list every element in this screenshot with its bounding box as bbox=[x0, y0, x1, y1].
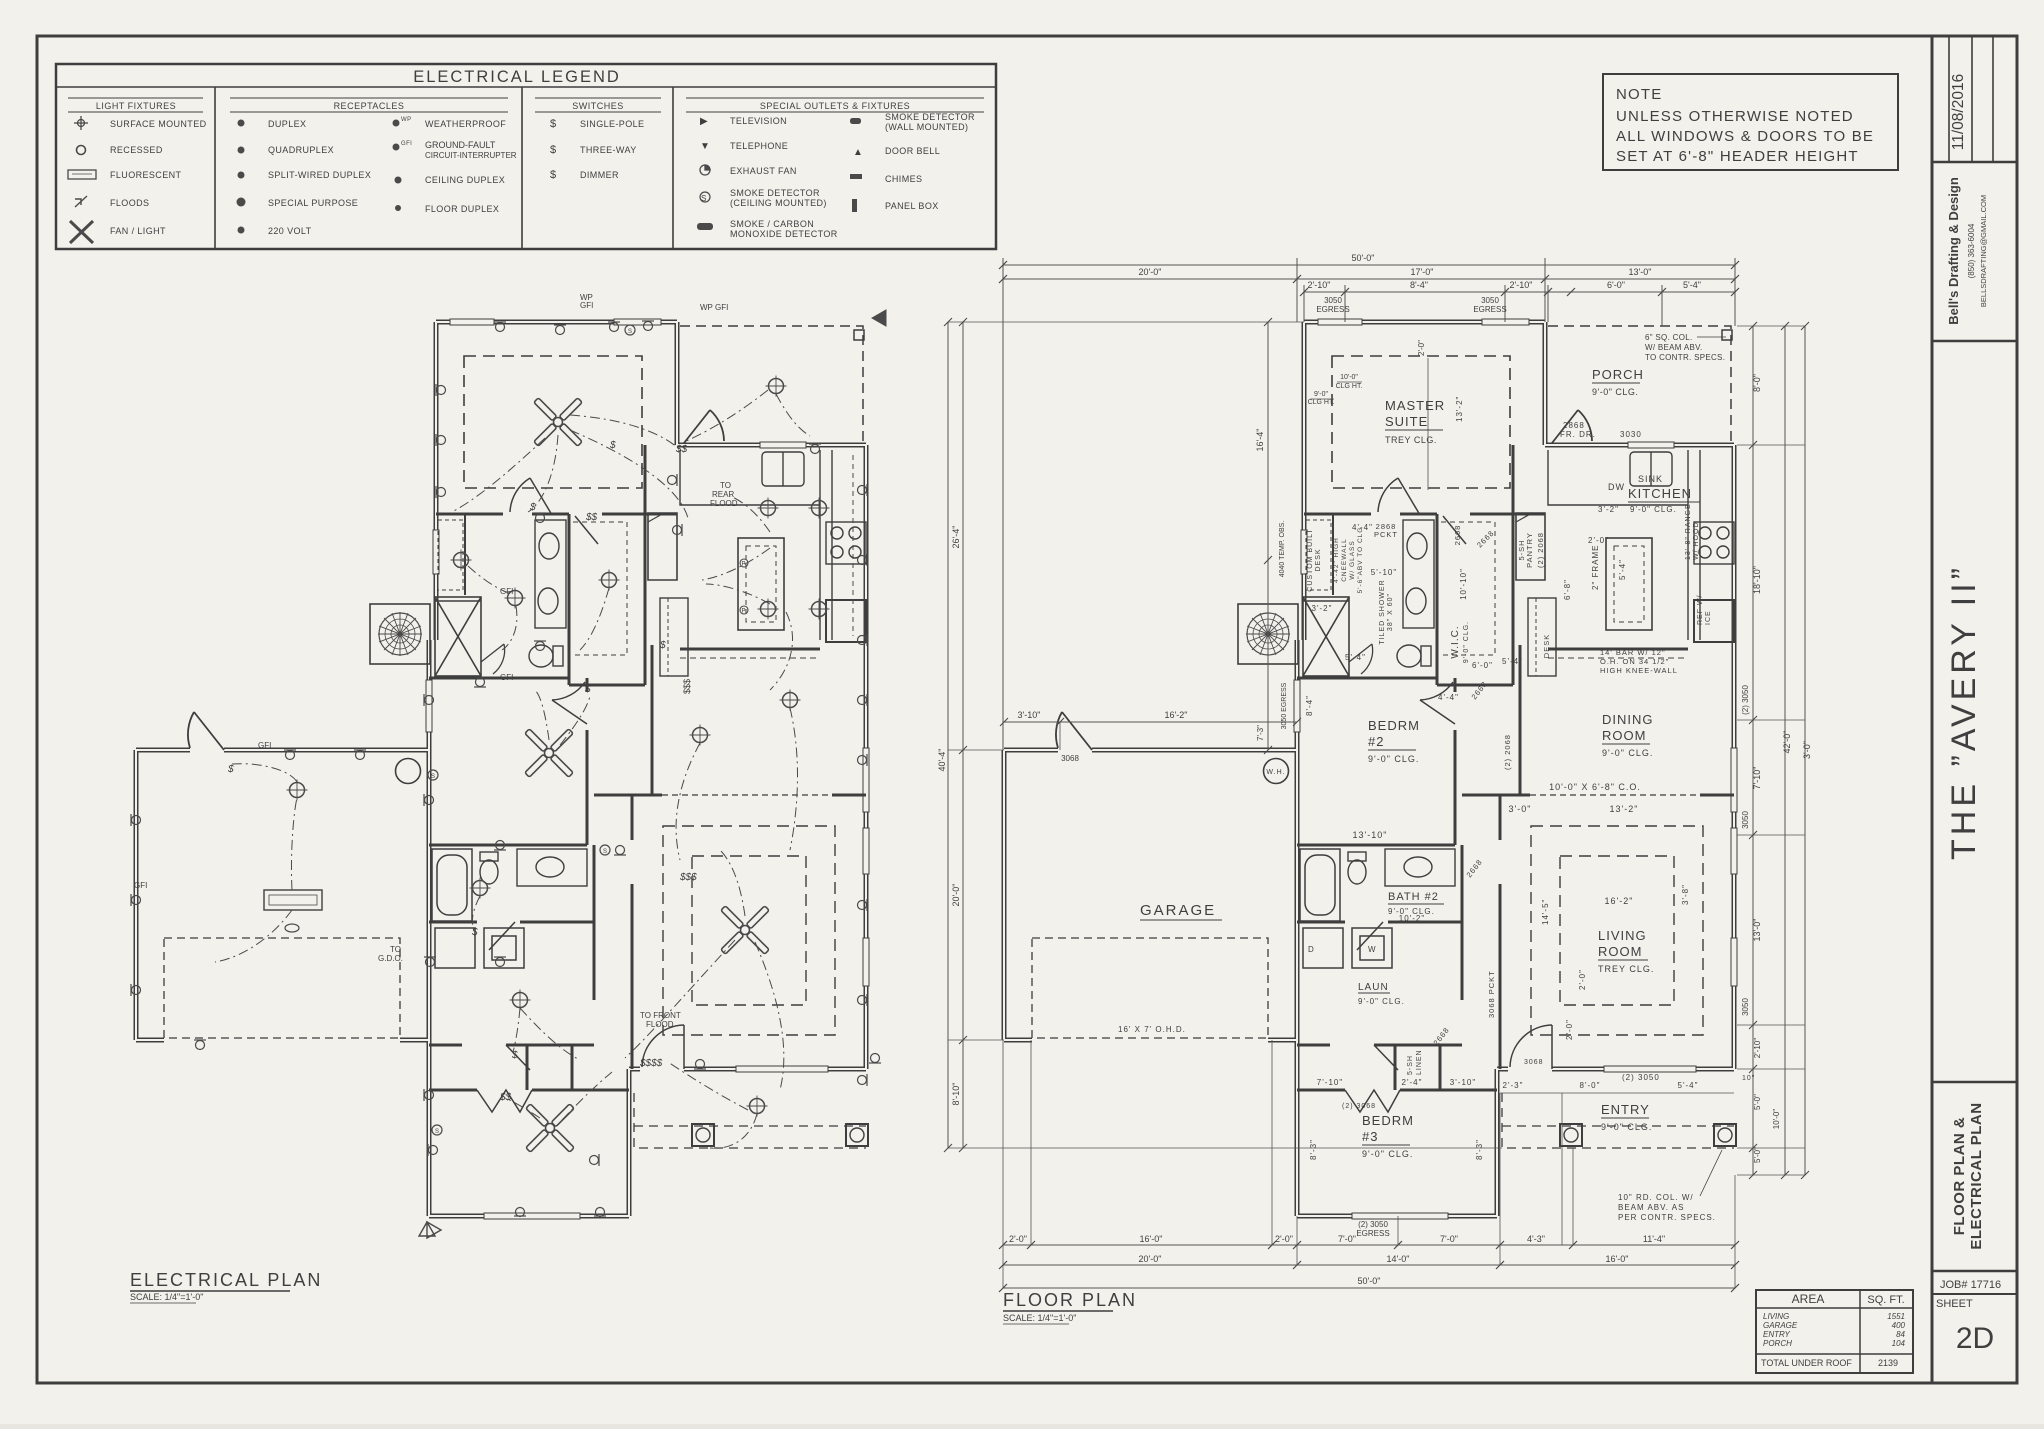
svg-text:(2) 3050: (2) 3050 bbox=[1358, 1220, 1388, 1229]
svg-text:3'-8": 3'-8" bbox=[1681, 884, 1690, 905]
svg-text:6'-0": 6'-0" bbox=[1607, 280, 1625, 290]
svg-text:W/ GLASS: W/ GLASS bbox=[1349, 540, 1356, 579]
svg-text:20'-0": 20'-0" bbox=[1139, 267, 1162, 277]
svg-text:$$$: $$$ bbox=[679, 872, 697, 883]
svg-text:DESK: DESK bbox=[1315, 548, 1322, 571]
svg-text:DOOR BELL: DOOR BELL bbox=[885, 146, 940, 156]
svg-text:ROOM: ROOM bbox=[1598, 944, 1642, 959]
svg-text:$: $ bbox=[471, 927, 478, 938]
svg-text:2D: 2D bbox=[1956, 1322, 1994, 1355]
svg-text:10'-0": 10'-0" bbox=[1340, 374, 1358, 381]
svg-text:3050: 3050 bbox=[1481, 296, 1499, 305]
svg-text:WP GFI: WP GFI bbox=[700, 303, 728, 312]
svg-text:CUSTOM BUILT: CUSTOM BUILT bbox=[1307, 528, 1314, 591]
svg-text:11'-4": 11'-4" bbox=[1643, 1234, 1665, 1244]
svg-text:P: P bbox=[742, 609, 746, 615]
svg-text:SCALE: 1/4"=1'-0": SCALE: 1/4"=1'-0" bbox=[130, 1292, 203, 1302]
svg-text:PANEL BOX: PANEL BOX bbox=[885, 201, 939, 211]
svg-text:ICE: ICE bbox=[1705, 610, 1712, 625]
svg-text:▶: ▶ bbox=[700, 116, 708, 127]
svg-text:16'-2": 16'-2" bbox=[1605, 896, 1634, 906]
svg-text:13'-2": 13'-2" bbox=[1610, 804, 1639, 814]
svg-text:RECESSED: RECESSED bbox=[110, 145, 163, 155]
svg-text:GFI: GFI bbox=[258, 741, 271, 750]
svg-text:16'-2": 16'-2" bbox=[1165, 710, 1188, 720]
svg-text:SUITE: SUITE bbox=[1385, 414, 1428, 429]
svg-text:▼: ▼ bbox=[700, 141, 710, 152]
svg-text:8'-4": 8'-4" bbox=[1410, 280, 1428, 290]
svg-text:8'-0": 8'-0" bbox=[1580, 1081, 1601, 1090]
svg-text:16'-0": 16'-0" bbox=[1140, 1234, 1163, 1244]
svg-text:50'-0": 50'-0" bbox=[1358, 1276, 1381, 1286]
svg-text:DW: DW bbox=[1608, 482, 1625, 492]
svg-text:EGRESS: EGRESS bbox=[1316, 305, 1349, 314]
svg-text:SCALE: 1/4"=1'-0": SCALE: 1/4"=1'-0" bbox=[1003, 1313, 1076, 1323]
svg-text:3050: 3050 bbox=[1324, 296, 1342, 305]
svg-text:18'-10": 18'-10" bbox=[1752, 566, 1762, 594]
svg-text:GFI: GFI bbox=[500, 673, 513, 682]
svg-text:(2) 3050: (2) 3050 bbox=[1622, 1073, 1660, 1082]
svg-text:3'-10": 3'-10" bbox=[1018, 710, 1041, 720]
svg-text:TELEVISION: TELEVISION bbox=[730, 116, 787, 126]
svg-text:DINING: DINING bbox=[1602, 712, 1654, 727]
svg-text:W/ BEAM ABV.: W/ BEAM ABV. bbox=[1645, 343, 1703, 352]
svg-text:5'-4": 5'-4" bbox=[1345, 653, 1366, 662]
svg-text:13'-10": 13'-10" bbox=[1353, 830, 1388, 840]
svg-text:17'-0": 17'-0" bbox=[1411, 267, 1434, 277]
svg-text:16' X 7' O.H.D.: 16' X 7' O.H.D. bbox=[1118, 1025, 1186, 1034]
svg-text:104: 104 bbox=[1892, 1339, 1906, 1348]
svg-text:Bell's Drafting & Design: Bell's Drafting & Design bbox=[1946, 177, 1961, 325]
svg-text:TO: TO bbox=[720, 481, 731, 490]
svg-text:CIRCUIT-INTERRUPTER: CIRCUIT-INTERRUPTER bbox=[425, 151, 517, 160]
svg-text:TELEPHONE: TELEPHONE bbox=[730, 141, 788, 151]
svg-text:16'-0": 16'-0" bbox=[1606, 1254, 1629, 1264]
svg-text:THREE-WAY: THREE-WAY bbox=[580, 145, 637, 155]
svg-text:5'-4": 5'-4" bbox=[1502, 657, 1523, 666]
svg-text:9'-0" CLG.: 9'-0" CLG. bbox=[1630, 505, 1677, 514]
svg-text:$$$$: $$$$ bbox=[639, 1058, 663, 1069]
svg-text:DUPLEX: DUPLEX bbox=[268, 119, 306, 129]
svg-text:(2) 2068: (2) 2068 bbox=[1503, 734, 1512, 770]
svg-text:50'-0": 50'-0" bbox=[1352, 253, 1375, 263]
svg-text:8'-3": 8'-3" bbox=[1475, 1139, 1484, 1160]
svg-text:SET AT 6'-8" HEADER HEIGHT: SET AT 6'-8" HEADER HEIGHT bbox=[1616, 148, 1859, 165]
svg-text:(WALL MOUNTED): (WALL MOUNTED) bbox=[885, 122, 968, 132]
svg-text:JOB# 17716: JOB# 17716 bbox=[1940, 1279, 2001, 1291]
svg-text:#2: #2 bbox=[1368, 734, 1384, 749]
svg-text:2'-0": 2'-0" bbox=[1417, 340, 1426, 356]
svg-text:MONOXIDE DETECTOR: MONOXIDE DETECTOR bbox=[730, 229, 838, 239]
svg-text:14' BAR W/ 12": 14' BAR W/ 12" bbox=[1600, 648, 1666, 657]
svg-text:2'-4": 2'-4" bbox=[1402, 1078, 1423, 1087]
svg-text:EXHAUST FAN: EXHAUST FAN bbox=[730, 166, 797, 176]
svg-text:CLG HT.: CLG HT. bbox=[1336, 383, 1363, 390]
svg-text:$$$: $$$ bbox=[682, 679, 692, 694]
svg-text:4'-4": 4'-4" bbox=[1352, 523, 1373, 532]
svg-text:LINEN: LINEN bbox=[1416, 1049, 1423, 1075]
svg-text:2" FRAME: 2" FRAME bbox=[1591, 544, 1600, 590]
svg-text:$$: $$ bbox=[675, 444, 688, 455]
svg-text:7'-0": 7'-0" bbox=[1440, 1234, 1458, 1244]
svg-text:2'-0": 2'-0" bbox=[1565, 1019, 1574, 1040]
svg-text:TO CONTR. SPECS.: TO CONTR. SPECS. bbox=[1645, 353, 1725, 362]
svg-text:1551: 1551 bbox=[1887, 1312, 1905, 1321]
svg-text:8'-3": 8'-3" bbox=[1309, 1139, 1318, 1160]
svg-text:2868: 2868 bbox=[1563, 421, 1585, 430]
svg-text:QUADRUPLEX: QUADRUPLEX bbox=[268, 145, 334, 155]
svg-text:PORCH: PORCH bbox=[1763, 1339, 1792, 1348]
svg-text:TREY CLG.: TREY CLG. bbox=[1385, 435, 1437, 445]
svg-text:TO: TO bbox=[390, 945, 401, 954]
svg-text:W/ HOOD: W/ HOOD bbox=[1693, 522, 1700, 561]
svg-text:MASTER: MASTER bbox=[1385, 398, 1445, 413]
svg-text:(CEILING MOUNTED): (CEILING MOUNTED) bbox=[730, 198, 827, 208]
svg-text:ALL WINDOWS & DOORS TO BE: ALL WINDOWS & DOORS TO BE bbox=[1616, 128, 1874, 145]
svg-text:S: S bbox=[628, 329, 632, 335]
svg-text:O.H. ON 34 1/2": O.H. ON 34 1/2" bbox=[1600, 657, 1669, 666]
svg-text:$: $ bbox=[659, 640, 666, 651]
svg-text:3050: 3050 bbox=[1741, 998, 1750, 1016]
svg-text:S: S bbox=[603, 849, 607, 855]
svg-text:TO FRONT: TO FRONT bbox=[640, 1011, 681, 1020]
svg-text:ELECTRICAL PLAN: ELECTRICAL PLAN bbox=[130, 1270, 322, 1290]
svg-text:3'-0": 3'-0" bbox=[1802, 741, 1812, 759]
svg-text:W.I.C.: W.I.C. bbox=[1450, 625, 1461, 658]
svg-text:PCKT: PCKT bbox=[1374, 530, 1398, 539]
svg-text:LIGHT FIXTURES: LIGHT FIXTURES bbox=[96, 101, 176, 111]
svg-text:9'-0": 9'-0" bbox=[1314, 391, 1328, 398]
svg-text:PORCH: PORCH bbox=[1592, 367, 1644, 382]
svg-text:THE ”AVERY II”: THE ”AVERY II” bbox=[1945, 564, 1983, 860]
svg-text:3068: 3068 bbox=[1061, 754, 1079, 763]
svg-text:6" SQ. COL.: 6" SQ. COL. bbox=[1645, 333, 1693, 342]
svg-text:BATH #2: BATH #2 bbox=[1388, 891, 1439, 903]
svg-text:20'-0": 20'-0" bbox=[951, 884, 961, 907]
svg-text:WP: WP bbox=[401, 117, 411, 123]
svg-text:9'-0" CLG.: 9'-0" CLG. bbox=[1592, 387, 1638, 397]
svg-text:9'-0" CLG.: 9'-0" CLG. bbox=[1362, 1149, 1413, 1159]
svg-text:2'-0": 2'-0" bbox=[1578, 969, 1587, 990]
svg-text:3030: 3030 bbox=[1620, 430, 1642, 439]
svg-text:SWITCHES: SWITCHES bbox=[572, 101, 624, 111]
svg-text:S: S bbox=[431, 774, 435, 780]
svg-text:W: W bbox=[1368, 945, 1377, 954]
svg-text:42'-0": 42'-0" bbox=[1782, 731, 1792, 754]
svg-text:BEAM ABV. AS: BEAM ABV. AS bbox=[1618, 1203, 1684, 1212]
svg-text:SHEET: SHEET bbox=[1936, 1298, 1973, 1310]
svg-text:FLOOD: FLOOD bbox=[710, 499, 738, 508]
svg-text:400: 400 bbox=[1892, 1321, 1906, 1330]
svg-text:(2) 3068: (2) 3068 bbox=[1342, 1103, 1376, 1110]
svg-text:5'-4": 5'-4" bbox=[1683, 280, 1701, 290]
svg-text:SINGLE-POLE: SINGLE-POLE bbox=[580, 119, 644, 129]
svg-text:WEATHERPROOF: WEATHERPROOF bbox=[425, 119, 506, 129]
svg-text:SMOKE / CARBON: SMOKE / CARBON bbox=[730, 219, 814, 229]
svg-text:5-SH: 5-SH bbox=[1407, 1055, 1414, 1075]
svg-text:$$: $$ bbox=[585, 512, 598, 523]
svg-text:40'-4": 40'-4" bbox=[937, 749, 947, 772]
svg-text:3068 PCKT: 3068 PCKT bbox=[1487, 970, 1496, 1018]
svg-text:8'-0": 8'-0" bbox=[1752, 374, 1762, 392]
svg-text:9'-0" CLG.: 9'-0" CLG. bbox=[1358, 997, 1405, 1006]
svg-text:ELECTRICAL PLAN: ELECTRICAL PLAN bbox=[1968, 1102, 1985, 1249]
svg-text:13'-0": 13'-0" bbox=[1629, 267, 1652, 277]
svg-text:6'-8": 6'-8" bbox=[1563, 579, 1572, 600]
svg-text:220 VOLT: 220 VOLT bbox=[268, 226, 312, 236]
svg-text:SPLIT-WIRED DUPLEX: SPLIT-WIRED DUPLEX bbox=[268, 170, 371, 180]
svg-text:FLOOR DUPLEX: FLOOR DUPLEX bbox=[425, 204, 499, 214]
svg-text:14'-5": 14'-5" bbox=[1541, 899, 1550, 925]
svg-text:38" X 60": 38" X 60" bbox=[1387, 593, 1394, 631]
svg-text:14'-0": 14'-0" bbox=[1387, 1254, 1410, 1264]
svg-text:LIVING: LIVING bbox=[1598, 928, 1647, 943]
svg-text:(850) 363-6004: (850) 363-6004 bbox=[1967, 223, 1976, 278]
svg-text:SMOKE DETECTOR: SMOKE DETECTOR bbox=[885, 112, 975, 122]
svg-text:6'-0": 6'-0" bbox=[1472, 661, 1493, 670]
svg-text:PANTRY: PANTRY bbox=[1525, 532, 1534, 568]
svg-text:10'-0" X 6'-8" C.O.: 10'-0" X 6'-8" C.O. bbox=[1549, 782, 1641, 792]
svg-text:5'-0": 5'-0" bbox=[1753, 1094, 1762, 1110]
svg-text:TOTAL UNDER ROOF: TOTAL UNDER ROOF bbox=[1761, 1358, 1852, 1368]
svg-text:5'-4": 5'-4" bbox=[1678, 1081, 1699, 1090]
svg-text:FLOOD: FLOOD bbox=[646, 1020, 674, 1029]
svg-text:2'-0": 2'-0" bbox=[1275, 1234, 1293, 1244]
svg-text:5'-10": 5'-10" bbox=[1371, 568, 1397, 577]
svg-text:GFI: GFI bbox=[401, 141, 412, 147]
svg-text:2139: 2139 bbox=[1878, 1358, 1898, 1368]
svg-text:$: $ bbox=[529, 502, 536, 513]
svg-text:2'-3": 2'-3" bbox=[1503, 1081, 1524, 1090]
svg-text:$: $ bbox=[511, 1050, 518, 1061]
svg-text:CLG HT.: CLG HT. bbox=[1308, 399, 1335, 406]
svg-text:10'-10": 10'-10" bbox=[1459, 568, 1468, 600]
svg-text:2'-10": 2'-10" bbox=[1510, 280, 1533, 290]
svg-text:(2) 2068: (2) 2068 bbox=[1536, 532, 1545, 568]
svg-text:$: $ bbox=[550, 118, 557, 130]
svg-text:7'-0": 7'-0" bbox=[1338, 1234, 1356, 1244]
svg-text:#3: #3 bbox=[1362, 1129, 1378, 1144]
svg-text:REAR: REAR bbox=[712, 490, 734, 499]
svg-text:20'-0": 20'-0" bbox=[1139, 1254, 1162, 1264]
svg-text:LAUN: LAUN bbox=[1358, 982, 1389, 993]
svg-text:GFI: GFI bbox=[580, 301, 593, 310]
svg-text:DESK: DESK bbox=[1542, 634, 1551, 658]
svg-text:4040 TEMP. OBS.: 4040 TEMP. OBS. bbox=[1279, 521, 1286, 578]
svg-text:BEDRM: BEDRM bbox=[1368, 718, 1420, 733]
svg-text:D: D bbox=[1308, 945, 1315, 954]
svg-text:3'-0": 3'-0" bbox=[1509, 804, 1532, 814]
svg-text:BELLSDRAFTING@GMAIL.COM: BELLSDRAFTING@GMAIL.COM bbox=[1979, 195, 1988, 307]
svg-text:UNLESS OTHERWISE NOTED: UNLESS OTHERWISE NOTED bbox=[1616, 108, 1854, 125]
svg-text:EGRESS: EGRESS bbox=[1356, 1229, 1389, 1238]
svg-text:3050 EGRESS: 3050 EGRESS bbox=[1281, 682, 1288, 729]
svg-text:4'-42" HIGH: 4'-42" HIGH bbox=[1333, 537, 1340, 583]
svg-text:10'-0": 10'-0" bbox=[1772, 1109, 1781, 1130]
svg-text:8'-10": 8'-10" bbox=[951, 1083, 961, 1106]
svg-text:10'-2": 10'-2" bbox=[1399, 914, 1425, 923]
svg-text:P: P bbox=[742, 562, 746, 568]
svg-text:W.H.: W.H. bbox=[1266, 769, 1285, 776]
svg-text:$$: $$ bbox=[499, 1092, 512, 1103]
svg-text:▲: ▲ bbox=[853, 147, 863, 158]
svg-text:G.D.O.: G.D.O. bbox=[378, 954, 403, 963]
svg-text:GFI: GFI bbox=[134, 881, 147, 890]
svg-text:REF W/: REF W/ bbox=[1697, 595, 1704, 626]
svg-text:NOTE: NOTE bbox=[1616, 86, 1662, 103]
svg-text:26'-4": 26'-4" bbox=[951, 526, 961, 549]
svg-text:SMOKE DETECTOR: SMOKE DETECTOR bbox=[730, 188, 820, 198]
svg-text:FR. DR.: FR. DR. bbox=[1560, 430, 1596, 439]
svg-text:DIMMER: DIMMER bbox=[580, 170, 619, 180]
svg-text:13'-2": 13'-2" bbox=[1455, 396, 1464, 422]
svg-text:GROUND-FAULT: GROUND-FAULT bbox=[425, 140, 496, 150]
svg-text:ENTRY: ENTRY bbox=[1601, 1102, 1650, 1117]
svg-text:FLOOR PLAN: FLOOR PLAN bbox=[1003, 1290, 1137, 1310]
svg-text:HIGH KNEE-WALL: HIGH KNEE-WALL bbox=[1600, 666, 1678, 675]
svg-text:ELECTRICAL LEGEND: ELECTRICAL LEGEND bbox=[413, 68, 621, 86]
svg-text:(2) 3050: (2) 3050 bbox=[1741, 685, 1750, 715]
svg-text:11/08/2016: 11/08/2016 bbox=[1950, 74, 1967, 150]
svg-text:S: S bbox=[701, 194, 707, 203]
svg-text:BEDRM: BEDRM bbox=[1362, 1113, 1414, 1128]
svg-text:9'-0" CLG.: 9'-0" CLG. bbox=[1368, 754, 1419, 764]
svg-text:TREY CLG.: TREY CLG. bbox=[1598, 964, 1654, 974]
svg-text:KITCHEN: KITCHEN bbox=[1628, 486, 1692, 501]
svg-text:7'-10": 7'-10" bbox=[1317, 1078, 1343, 1087]
svg-text:FLOODS: FLOODS bbox=[110, 198, 149, 208]
svg-text:$: $ bbox=[584, 684, 591, 695]
svg-text:SPECIAL OUTLETS & FIXTURES: SPECIAL OUTLETS & FIXTURES bbox=[760, 101, 910, 111]
svg-text:3'-2": 3'-2" bbox=[1598, 505, 1619, 514]
svg-text:2'-10": 2'-10" bbox=[1753, 1038, 1762, 1059]
svg-text:GFI: GFI bbox=[500, 587, 513, 596]
svg-text:$: $ bbox=[550, 169, 557, 181]
svg-text:4'-3": 4'-3" bbox=[1527, 1234, 1545, 1244]
svg-text:2'-10": 2'-10" bbox=[1308, 280, 1331, 290]
svg-text:EGRESS: EGRESS bbox=[1473, 305, 1506, 314]
svg-text:ROOM: ROOM bbox=[1602, 728, 1646, 743]
svg-text:FLUORESCENT: FLUORESCENT bbox=[110, 170, 182, 180]
svg-text:16'-4": 16'-4" bbox=[1255, 429, 1265, 452]
svg-text:5'-6"ABV TO CLG: 5'-6"ABV TO CLG bbox=[1357, 527, 1364, 594]
svg-text:3068: 3068 bbox=[1524, 1059, 1544, 1066]
svg-text:CNEEWALL: CNEEWALL bbox=[1341, 538, 1348, 582]
svg-text:2'-0": 2'-0" bbox=[1588, 536, 1609, 545]
svg-text:TILED SHOWER: TILED SHOWER bbox=[1379, 579, 1386, 644]
svg-text:7'-10": 7'-10" bbox=[1752, 767, 1762, 790]
svg-text:10": 10" bbox=[1742, 1075, 1755, 1082]
svg-text:8'-4": 8'-4" bbox=[1305, 695, 1314, 716]
svg-text:PER CONTR. SPECS.: PER CONTR. SPECS. bbox=[1618, 1213, 1716, 1222]
svg-text:CHIMES: CHIMES bbox=[885, 174, 922, 184]
svg-text:3050: 3050 bbox=[1741, 811, 1750, 829]
svg-text:CEILING DUPLEX: CEILING DUPLEX bbox=[425, 175, 505, 185]
svg-text:10" RD. COL. W/: 10" RD. COL. W/ bbox=[1618, 1193, 1694, 1202]
svg-text:13'-0": 13'-0" bbox=[1752, 919, 1762, 942]
svg-text:9'-0" CLG.: 9'-0" CLG. bbox=[1602, 748, 1653, 758]
svg-text:SPECIAL PURPOSE: SPECIAL PURPOSE bbox=[268, 198, 358, 208]
svg-text:AREA: AREA bbox=[1792, 1292, 1825, 1306]
svg-text:5'-0": 5'-0" bbox=[1753, 1147, 1762, 1163]
svg-text:3'-10": 3'-10" bbox=[1450, 1078, 1476, 1087]
svg-text:$: $ bbox=[550, 144, 557, 156]
svg-text:SINK: SINK bbox=[1638, 474, 1663, 484]
svg-text:FAN / LIGHT: FAN / LIGHT bbox=[110, 226, 166, 236]
svg-text:9'-0" CLG.: 9'-0" CLG. bbox=[1601, 1122, 1652, 1132]
svg-text:GARAGE: GARAGE bbox=[1763, 1321, 1798, 1330]
svg-text:84: 84 bbox=[1896, 1330, 1905, 1339]
svg-text:2668: 2668 bbox=[1453, 525, 1462, 546]
svg-text:13'-8" RANGE: 13'-8" RANGE bbox=[1685, 503, 1692, 560]
svg-text:SQ. FT.: SQ. FT. bbox=[1867, 1294, 1904, 1306]
svg-text:4'-4": 4'-4" bbox=[1438, 693, 1459, 702]
svg-text:GARAGE: GARAGE bbox=[1140, 902, 1216, 919]
svg-text:7'-3": 7'-3" bbox=[1256, 725, 1265, 741]
svg-text:S: S bbox=[435, 1129, 439, 1135]
svg-text:5'-4": 5'-4" bbox=[1618, 559, 1627, 580]
svg-text:9'-0" CLG.: 9'-0" CLG. bbox=[1463, 621, 1470, 663]
svg-text:3'-2": 3'-2" bbox=[1312, 604, 1333, 613]
svg-text:SURFACE MOUNTED: SURFACE MOUNTED bbox=[110, 119, 207, 129]
svg-text:ENTRY: ENTRY bbox=[1763, 1330, 1790, 1339]
svg-text:RECEPTACLES: RECEPTACLES bbox=[334, 101, 405, 111]
svg-text:LIVING: LIVING bbox=[1763, 1312, 1789, 1321]
svg-text:FLOOR PLAN &: FLOOR PLAN & bbox=[1951, 1117, 1968, 1236]
svg-text:$: $ bbox=[227, 764, 234, 775]
svg-text:2'-0": 2'-0" bbox=[1009, 1234, 1027, 1244]
